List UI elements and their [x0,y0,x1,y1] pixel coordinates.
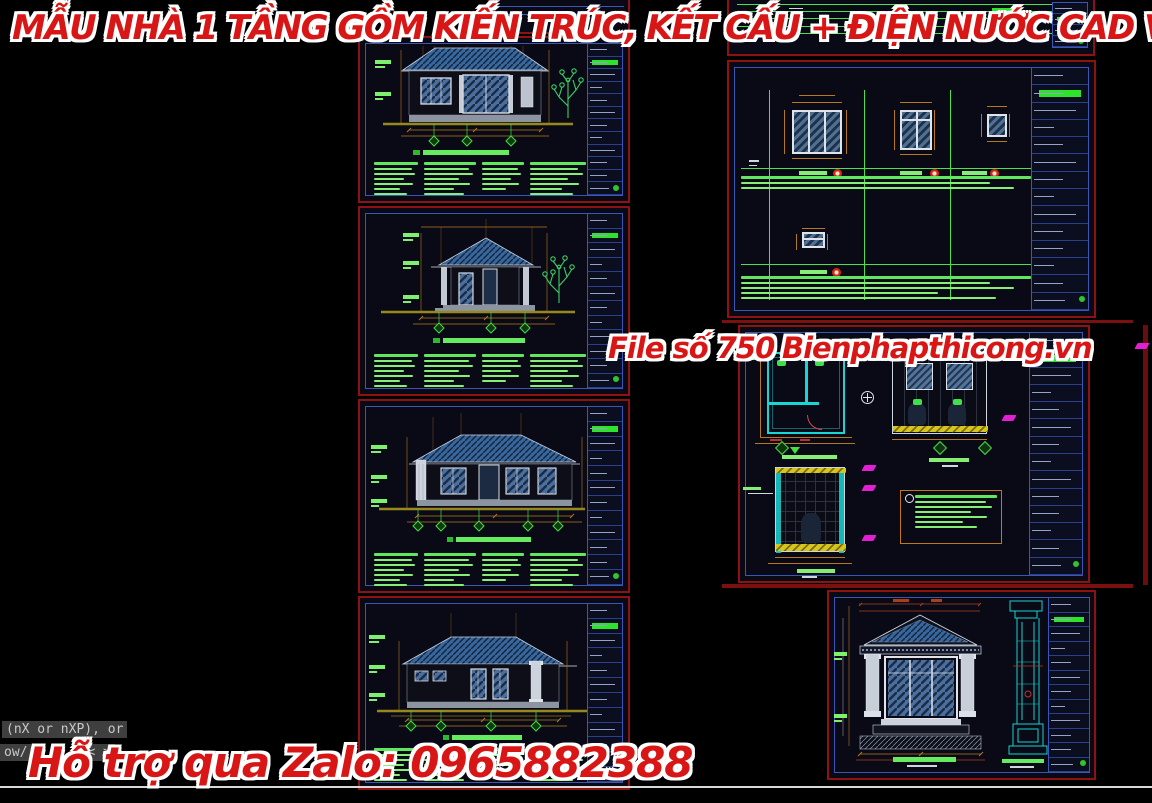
hip-roof [413,435,576,462]
notes-column [374,162,418,195]
notes-box [900,490,1002,544]
title-block [1048,597,1090,773]
section-arrow-icon [790,447,800,454]
command-input-fragment: ow/ [0,744,31,761]
level-markers [371,445,387,507]
notes-column [530,354,586,387]
notes-column [374,553,418,586]
plot-stamp [1001,415,1016,421]
title-block [1029,332,1083,576]
grid-bubbles [434,323,530,333]
sheet-front-elevation [358,36,630,203]
column-section-detail [1009,601,1047,754]
sheet-portico-detail [827,590,1096,780]
drawing-title-bar [456,537,531,542]
website-watermark: Bienphapthicong.vn [782,331,1092,365]
adjacent-sheet-border [1143,325,1148,585]
notes-column [374,354,418,387]
plot-stamp [861,465,876,471]
file-number-watermark: File số 750 [608,331,774,365]
zalo-support-watermark: Hỗ trợ qua Zalo: 0965882388 [28,738,693,787]
notes-column [424,162,476,195]
rear-elevation-drawing [363,601,589,741]
adjacent-sheet-border [722,320,1133,323]
side-elevation-drawing [363,211,589,345]
command-line[interactable]: (nX or nXP), or [2,722,127,737]
level-markers [375,60,391,100]
banner-title: MẪU NHÀ 1 TẦNG GỒM KIẾN TRÚC, KẾT CẤU + … [12,8,1152,48]
notes-column [530,162,586,195]
notes-column [530,553,586,586]
notes-column [482,162,524,190]
title-block [1031,67,1089,311]
notes-column [424,553,476,586]
drawing-title-bar [443,338,525,343]
sheet-window-schedule [727,60,1096,318]
notes-column [482,553,524,581]
window-elevation-transom [802,232,825,248]
wc-section-drawing [892,354,987,434]
grid-bubble [933,441,947,455]
title-block [587,406,623,586]
level-markers [369,635,385,701]
drawing-title-bar [1002,759,1044,763]
notes-column [424,354,476,387]
grid-bubbles [429,136,516,146]
plot-stamp [861,485,876,491]
window-elevation-2-leaf [900,110,932,150]
title-block [587,43,623,196]
command-prompt-text: (nX or nXP), or [2,721,127,738]
window-elevation-small [987,114,1007,137]
bathroom-wall-section [775,467,845,552]
note-number-icon [905,494,914,503]
sheet-side-elevation-1 [358,206,630,396]
long-elevation-drawing [363,405,589,547]
level-markers [834,652,847,722]
section-marker-icon [861,391,874,404]
grid-bubble [978,441,992,455]
gable-roof [439,238,533,265]
notes-column [915,495,997,528]
grid-bubbles [413,521,563,531]
tree-icon [543,256,574,303]
schedule-rows [741,176,1031,189]
window-elevation-3-leaf [792,110,842,154]
adjacent-sheet-border [722,584,1133,588]
front-elevation-drawing [363,40,589,157]
drawing-title-bar [893,757,956,762]
hip-roof [403,637,563,664]
schedule-rows [741,276,1031,299]
drawing-title-bar [423,150,509,155]
tree-icon [552,69,583,118]
portico-detail-drawing [833,596,1049,774]
sheet-side-elevation-2 [358,399,630,593]
level-markers [403,233,419,303]
hip-roof [403,48,547,70]
plot-stamp [861,535,876,541]
notes-column [482,354,524,382]
autocad-viewport: (nX or nXP), or ow/< > MẪU NHÀ 1 TẦNG GỒ… [0,0,1152,803]
